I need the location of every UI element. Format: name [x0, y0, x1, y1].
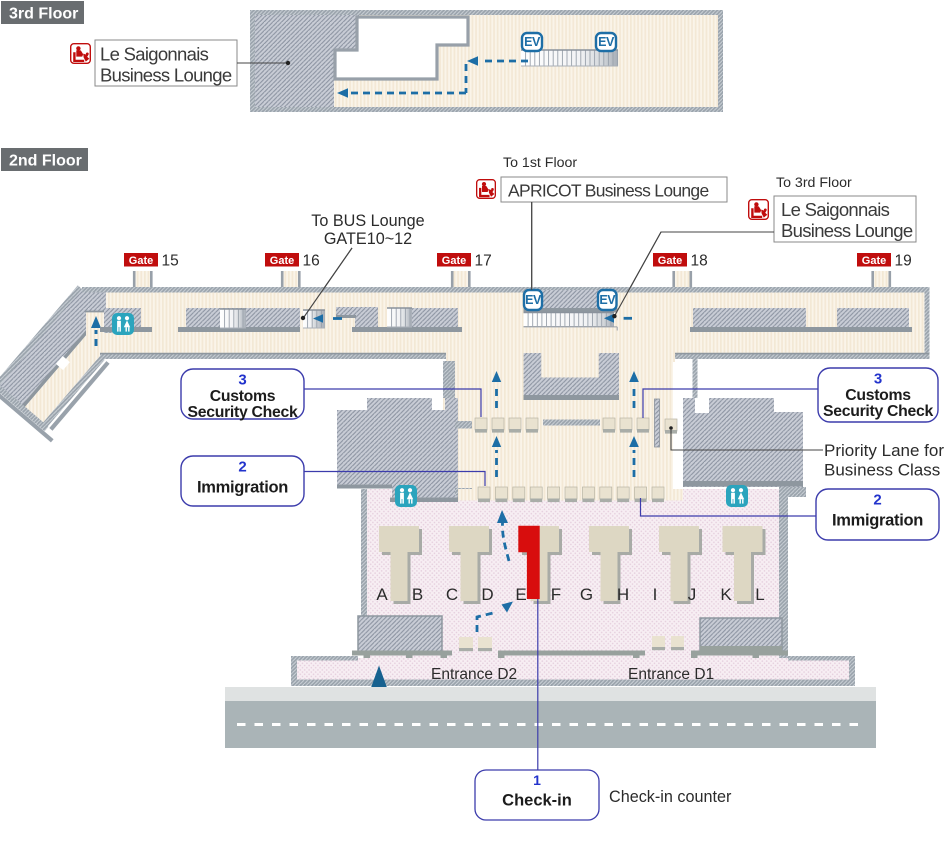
svg-text:D: D — [481, 585, 493, 604]
svg-text:F: F — [551, 585, 561, 604]
svg-text:B: B — [412, 585, 423, 604]
svg-text:Le Saigonnais: Le Saigonnais — [781, 199, 890, 220]
svg-text:Check-in: Check-in — [502, 792, 572, 810]
svg-text:3: 3 — [874, 371, 882, 388]
svg-text:Gate: Gate — [658, 255, 682, 267]
svg-text:To 3rd Floor: To 3rd Floor — [776, 175, 852, 191]
svg-text:Priority Lane for: Priority Lane for — [824, 441, 944, 460]
svg-text:Gate: Gate — [270, 255, 294, 267]
svg-text:Gate: Gate — [442, 255, 466, 267]
svg-text:Customs: Customs — [845, 387, 911, 404]
svg-text:I: I — [653, 585, 658, 604]
svg-text:EV: EV — [524, 35, 541, 49]
svg-text:J: J — [688, 585, 697, 604]
svg-text:Immigration: Immigration — [832, 512, 923, 530]
svg-text:A: A — [376, 585, 388, 604]
svg-text:18: 18 — [691, 253, 708, 270]
svg-text:16: 16 — [303, 253, 320, 270]
svg-text:Check-in counter: Check-in counter — [609, 788, 732, 806]
svg-text:Security Check: Security Check — [188, 404, 298, 421]
svg-text:Entrance D2: Entrance D2 — [431, 666, 517, 683]
svg-text:APRICOT Business Lounge: APRICOT Business Lounge — [508, 181, 709, 201]
svg-text:19: 19 — [895, 253, 912, 270]
svg-text:15: 15 — [162, 253, 179, 270]
svg-text:To BUS Lounge: To BUS Lounge — [311, 212, 424, 230]
svg-text:2: 2 — [238, 459, 246, 476]
svg-text:Le Saigonnais: Le Saigonnais — [100, 44, 209, 65]
svg-text:EV: EV — [525, 293, 542, 307]
svg-text:EV: EV — [598, 35, 615, 49]
svg-text:To 1st Floor: To 1st Floor — [503, 155, 577, 171]
svg-text:Entrance D1: Entrance D1 — [628, 666, 714, 683]
svg-text:G: G — [580, 585, 593, 604]
svg-text:17: 17 — [475, 253, 492, 270]
svg-text:C: C — [446, 585, 458, 604]
svg-text:Gate: Gate — [862, 255, 886, 267]
svg-text:3: 3 — [238, 372, 246, 389]
svg-text:Immigration: Immigration — [197, 479, 288, 497]
svg-text:Security Check: Security Check — [823, 403, 933, 420]
svg-text:K: K — [720, 585, 732, 604]
svg-text:Business Lounge: Business Lounge — [100, 65, 232, 86]
svg-text:H: H — [617, 585, 629, 604]
svg-text:Business Class: Business Class — [824, 461, 940, 480]
svg-text:Gate: Gate — [129, 255, 153, 267]
svg-text:2nd Floor: 2nd Floor — [9, 153, 82, 170]
svg-text:L: L — [755, 585, 764, 604]
svg-text:E: E — [515, 585, 526, 604]
svg-text:Customs: Customs — [210, 388, 276, 405]
svg-text:1: 1 — [533, 772, 541, 788]
svg-text:GATE10~12: GATE10~12 — [324, 230, 412, 248]
svg-text:2: 2 — [873, 492, 881, 509]
svg-text:EV: EV — [599, 293, 616, 307]
svg-text:3rd Floor: 3rd Floor — [9, 6, 78, 23]
svg-text:Business Lounge: Business Lounge — [781, 220, 913, 241]
